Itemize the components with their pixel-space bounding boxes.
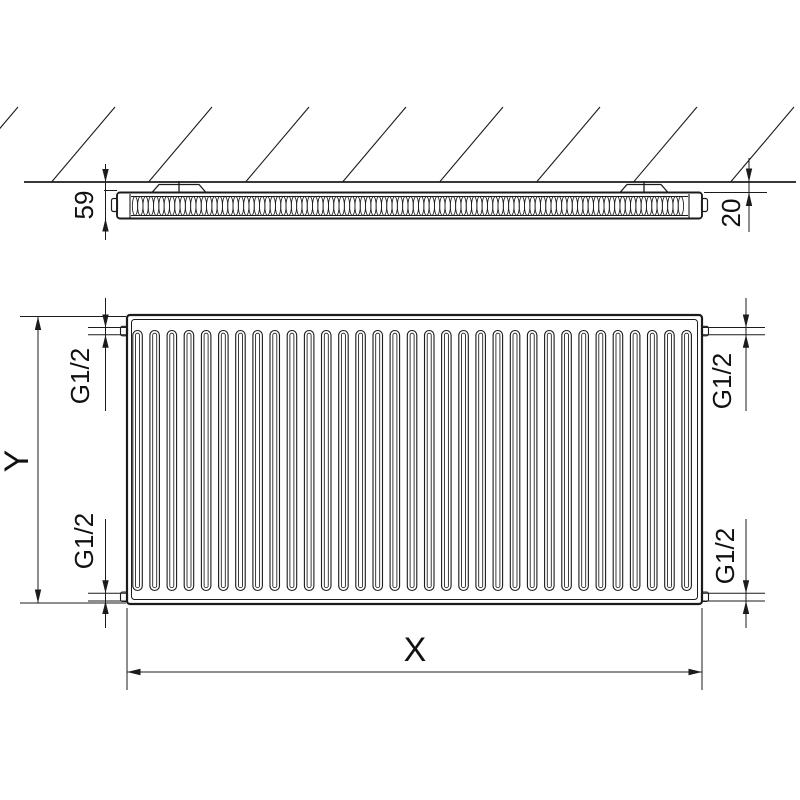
coil-loop [381,197,386,216]
coil-loop [275,197,280,216]
dim-width-x: X [127,608,702,690]
coil-loop [482,197,487,216]
dim-conn-top-right: G1/2 [702,298,765,411]
coil-loop [514,197,519,216]
dim-wall-distance: 20 [704,158,767,232]
front-slot [201,331,211,591]
drawing-svg: 59 20 G1/2 G1/2 [0,0,800,800]
coil-loop [175,197,180,216]
front-slot-inner [530,333,534,588]
coil-loop [620,197,625,216]
coil-loop [228,197,233,216]
coil-loop [631,197,636,216]
coil-loop [244,197,249,216]
coil-loop [487,197,492,216]
coil-loop [355,197,360,216]
front-slot [562,331,572,591]
coil-loop [493,197,498,216]
coil-loop [673,197,678,216]
wall-hatching [0,107,794,182]
front-slot [304,331,314,591]
front-slot [270,331,280,591]
coil-loop [498,197,503,216]
front-slot-inner [239,333,243,588]
coil-loop [440,197,445,216]
coil-loop [397,197,402,216]
front-slot [322,331,332,591]
front-slot-inner [359,333,363,588]
front-slot [167,331,177,591]
radiator-side-view [112,181,708,219]
coil-loop [376,197,381,216]
coil-loop [466,197,471,216]
coil-loop [387,197,392,216]
radiator-front-view [121,315,709,604]
front-slot [665,331,675,591]
coil-loop [556,197,561,216]
front-slot-inner [221,333,225,588]
front-slot-inner [599,333,603,588]
coil-loop [450,197,455,216]
coil-loop [604,197,609,216]
conn-label: G1/2 [65,348,95,404]
front-slot-inner [307,333,311,588]
coil-loop [678,197,683,216]
front-slot-inner [444,333,448,588]
coil-loop [403,197,408,216]
front-slot [510,331,520,591]
front-slot-inner [565,333,569,588]
coil-loop [154,197,159,216]
coil-loop [636,197,641,216]
coil-loop [350,197,355,216]
coil-loop [419,197,424,216]
front-slot-inner [462,333,466,588]
front-slot [596,331,606,591]
front-slot-inner [204,333,208,588]
arrow-down-icon [35,590,41,604]
coil-loop [318,197,323,216]
front-slot [236,331,246,591]
front-slot [219,331,229,591]
arrow-down-icon [102,580,108,593]
front-slot [407,331,417,591]
front-slot-inner [650,333,654,588]
coil-loop [302,197,307,216]
arrow-up-icon [102,335,108,348]
coil-loop [657,197,662,216]
coil-loop [297,197,302,216]
arrow-up-icon [35,317,41,331]
coil-loop [222,197,227,216]
front-slot [356,331,366,591]
front-slot-inner [633,333,637,588]
hatch-line [149,107,212,182]
coil-loop [185,197,190,216]
front-slot-inner [685,333,689,588]
front-slot [373,331,383,591]
arrow-down-icon [743,315,749,328]
coil-loop [132,197,137,216]
dim-depth-label: 59 [69,191,99,220]
coil-loop [392,197,397,216]
coil-loop [599,197,604,216]
front-slot-inner [256,333,260,588]
coil-loop [509,197,514,216]
front-slot-inner [668,333,672,588]
front-slot-inner [496,333,500,588]
front-slot-inner [479,333,483,588]
wall-section [0,107,796,182]
coil-loop [191,197,196,216]
coil-loop [572,197,577,216]
front-slot-inner [547,333,551,588]
coil-loop [662,197,667,216]
width-label: X [404,631,427,669]
front-slot [459,331,469,591]
coil-loop [456,197,461,216]
hatch-line [246,107,309,182]
front-slot-inner [393,333,397,588]
coil-loop [408,197,413,216]
coil-loop [148,197,153,216]
coil-loop [593,197,598,216]
coil-loop [313,197,318,216]
coil-loop [424,197,429,216]
front-slot [648,331,658,591]
coil-loop [307,197,312,216]
dim-conn-bottom-right: G1/2 [702,519,765,628]
coil-loop [609,197,614,216]
coil-loop [562,197,567,216]
coil-loop [588,197,593,216]
front-slot-inner [290,333,294,588]
front-slot-inner [582,333,586,588]
coil-loop [233,197,238,216]
dim-height-y: Y [0,317,126,604]
front-corrugations [133,331,692,591]
coil-loop [540,197,545,216]
coil-loop [180,197,185,216]
front-slot [579,331,589,591]
coil-loop [413,197,418,216]
front-slot [253,331,263,591]
front-slot [339,331,349,591]
arrow-up-icon [743,601,749,614]
coil-loop [583,197,588,216]
coil-loop [339,197,344,216]
coil-loop [371,197,376,216]
coil-loop [281,197,286,216]
coil-loop [286,197,291,216]
coil-loop [615,197,620,216]
coil-loop [461,197,466,216]
coil-loop [477,197,482,216]
hatch-line [343,107,406,182]
coil-loop [519,197,524,216]
coil-loop [201,197,206,216]
front-slot [184,331,194,591]
arrow-down-icon [102,169,108,182]
arrow-up-icon [746,193,752,207]
coil-loop [668,197,673,216]
coil-loop [270,197,275,216]
front-slot [425,331,435,591]
coil-loop [291,197,296,216]
front-slot-inner [376,333,380,588]
coil-loop [164,197,169,216]
coil-loop [334,197,339,216]
front-slot [682,331,692,591]
front-slot [390,331,400,591]
coil-loop [260,197,265,216]
coil-loop [445,197,450,216]
dim-depth: 59 [69,164,117,240]
hatch-line [0,107,18,182]
front-slot [476,331,486,591]
coil-loop [429,197,434,216]
coil-loop [138,197,143,216]
front-slot-inner [513,333,517,588]
front-slot [442,331,452,591]
front-slot [545,331,555,591]
coil-loop [196,197,201,216]
coil-loop [525,197,530,216]
front-slot-inner [410,333,414,588]
hatch-line [537,107,600,182]
conn-label: G1/2 [707,353,737,409]
coil-loop [328,197,333,216]
coil-loop [344,197,349,216]
coil-loop [434,197,439,216]
coil-loop [207,197,212,216]
dim-conn-bottom-left: G1/2 [69,513,127,628]
front-slot [527,331,537,591]
coil-loop [652,197,657,216]
arrow-down-icon [746,169,752,183]
front-slot [613,331,623,591]
arrow-left-icon [127,669,141,675]
front-slot-inner [341,333,345,588]
coil-loop [238,197,243,216]
coil-loop [567,197,572,216]
coil-loop [641,197,646,216]
hatch-line [440,107,503,182]
front-slot-inner [187,333,191,588]
coil-loop [254,197,259,216]
coil-loop [265,197,270,216]
coil-loop [360,197,365,216]
front-slot [150,331,160,591]
front-slot [287,331,297,591]
front-slot [133,331,143,591]
coil-loop [551,197,556,216]
arrow-up-icon [102,219,108,232]
front-slot [630,331,640,591]
coil-loop [472,197,477,216]
coil-loop [159,197,164,216]
front-slot-inner [136,333,140,588]
coil-loop [503,197,508,216]
arrow-down-icon [743,580,749,593]
arrow-right-icon [689,669,703,675]
coil-loop [217,197,222,216]
coil-loop [530,197,535,216]
coil-loop [143,197,148,216]
front-slot-inner [324,333,328,588]
coil-loop [366,197,371,216]
height-label: Y [0,450,36,473]
coil-loop [625,197,630,216]
dim-conn-top-left: G1/2 [65,298,127,411]
front-slot-inner [427,333,431,588]
front-slot-inner [616,333,620,588]
coil-loop [323,197,328,216]
coil-loop [646,197,651,216]
front-slot-inner [273,333,277,588]
coil-loop [212,197,217,216]
coil-loop [249,197,254,216]
front-slot-inner [170,333,174,588]
hatch-line [731,107,794,182]
conn-label: G1/2 [710,528,740,584]
coil-loop [169,197,174,216]
hatch-line [634,107,697,182]
coil-loop [546,197,551,216]
coil-loop [578,197,583,216]
arrow-up-icon [743,335,749,348]
front-slot-inner [153,333,157,588]
conn-label: G1/2 [69,513,99,569]
front-slot [493,331,503,591]
radiator-technical-drawing: 59 20 G1/2 G1/2 [0,0,800,800]
convector-fins [132,197,683,216]
coil-loop [535,197,540,216]
dim-wall-label: 20 [716,199,746,228]
